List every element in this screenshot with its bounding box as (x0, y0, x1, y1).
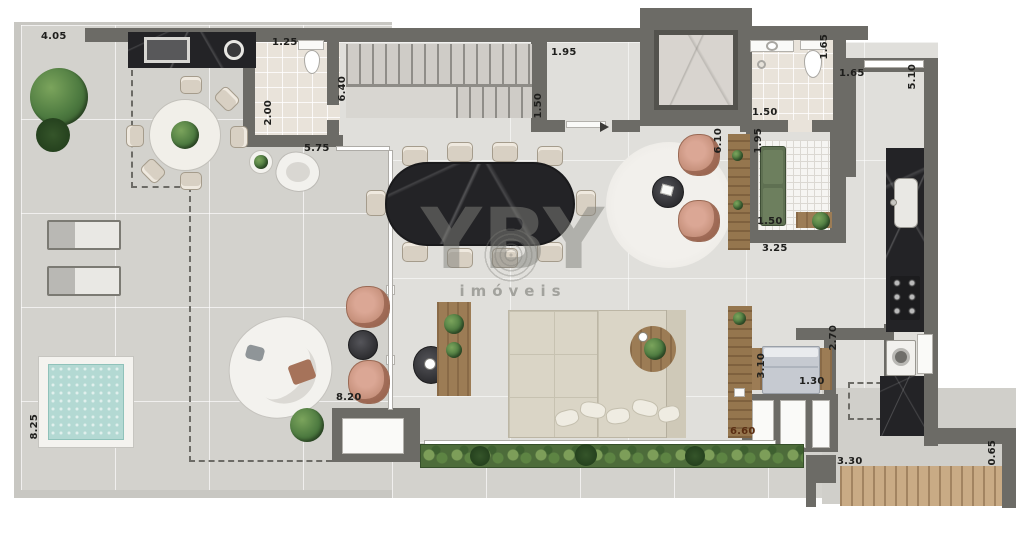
bath-basin (766, 41, 778, 51)
dimension-label: 3.25 (762, 244, 787, 254)
tree (30, 68, 88, 126)
stair-landing (346, 86, 456, 118)
sun-lounger (47, 266, 121, 296)
wall-garden-bottom (746, 230, 846, 243)
garden-sofa-cushion (763, 150, 783, 184)
shower-drain (757, 60, 766, 69)
dimension-label: 1.30 (799, 377, 824, 387)
closet-door-panel (812, 400, 830, 448)
service-counter (880, 376, 924, 436)
grill-icon (144, 37, 190, 63)
terrace-chair (180, 172, 202, 190)
console-plant (446, 342, 462, 358)
dimension-label: 1.50 (757, 217, 782, 227)
garden-plant (812, 212, 830, 230)
sofa-modules (508, 310, 598, 438)
wall-hedge-right-leg (806, 483, 816, 507)
palm-plant (36, 118, 70, 152)
hedge-palm (685, 446, 705, 466)
dark-side-table (348, 330, 378, 360)
service-cabinet (917, 334, 933, 374)
projection-line (189, 460, 332, 462)
faucet-icon (890, 199, 897, 206)
lounge-armchair (678, 200, 720, 242)
dimension-label: 3.30 (837, 457, 862, 467)
hedge-palm (575, 444, 597, 466)
tv-panel-plant (733, 312, 746, 325)
wall-hedge-right (806, 455, 836, 483)
wall-bedroom-top (796, 328, 892, 340)
dimension-label: 1.95 (551, 48, 576, 58)
table-centerpiece (171, 121, 199, 149)
organic-armchair-seat (286, 162, 310, 182)
dimension-label: 1.50 (752, 108, 777, 118)
wall-deck-right (1002, 444, 1016, 508)
tv-panel (728, 306, 752, 438)
coffee-table-bowl (424, 358, 436, 370)
bath-door-gap (788, 120, 812, 132)
dining-chair (492, 142, 518, 162)
terrace-chair (230, 126, 248, 148)
floor-plan: 4.05 1.25 6.40 2.00 5.75 1.95 1.50 1.65 … (0, 0, 1024, 534)
watermark-rings-icon (482, 226, 540, 284)
dimension-label: 1.25 (272, 38, 297, 48)
wall-hall-bottom-a (531, 120, 565, 132)
wall-garden-right (830, 132, 846, 242)
washing-machine-door (892, 348, 910, 366)
dimension-label: 5.75 (304, 144, 329, 154)
terrace-chair (180, 76, 202, 94)
bed-blanket-fold (764, 366, 818, 368)
dining-table (385, 162, 575, 246)
coffee-table-plant (644, 338, 666, 360)
dimension-label: 3.10 (757, 353, 767, 378)
dimension-label: 1.50 (534, 93, 544, 118)
wall-top-right (748, 26, 868, 40)
terrace-chair (126, 125, 144, 147)
tv-panel-decor (734, 388, 745, 397)
dimension-label: 6.40 (338, 76, 348, 101)
gourmet-glass (336, 146, 390, 151)
bbq-sink (224, 40, 244, 60)
dimension-label: 1.95 (754, 128, 764, 153)
wall-right (924, 58, 938, 446)
pool (48, 364, 124, 440)
dimension-label: 8.20 (336, 393, 361, 403)
dining-chair (366, 190, 386, 216)
hedge-palm (470, 446, 490, 466)
wall-deck-top (938, 428, 1016, 444)
sun-lounger (47, 220, 121, 250)
terrace-door-panel (342, 418, 404, 454)
closet-door-panel (780, 400, 806, 448)
staircase-upper-flight (346, 44, 532, 86)
dimension-label: 1.65 (839, 69, 864, 79)
side-table-plant (254, 155, 268, 169)
elevator-cab (654, 30, 738, 110)
shelf-plant (732, 150, 743, 161)
bed-pillows (764, 348, 818, 357)
dimension-label: 6.10 (714, 128, 724, 153)
dining-chair (447, 142, 473, 162)
dimension-label: 2.00 (264, 100, 274, 125)
dimension-label: 8.25 (30, 414, 40, 439)
terrace-plant (290, 408, 324, 442)
dimension-label: 5.10 (908, 64, 918, 89)
dining-chair (576, 190, 596, 216)
coffee-table-dish (638, 332, 648, 342)
dimension-label: 6.60 (730, 427, 755, 437)
cooktop-icon (890, 276, 920, 320)
kitchen-sink (894, 178, 918, 228)
projection-line (189, 186, 191, 462)
stair-rail (346, 84, 532, 87)
dining-chair (447, 248, 473, 268)
dimension-label: 1.65 (820, 34, 830, 59)
wall-hall-bottom-b (612, 120, 640, 132)
dimension-label: 4.05 (41, 32, 66, 42)
staircase-lower-flight (456, 86, 532, 118)
dimension-label: 0.65 (988, 440, 998, 465)
dimension-label: 2.70 (829, 325, 839, 350)
wood-deck (840, 466, 1016, 506)
console-plant (444, 314, 464, 334)
powder-toilet-tank (298, 40, 324, 50)
entry-arrow-icon (600, 122, 609, 132)
living-armchair (346, 286, 390, 328)
shelf-plant (733, 200, 743, 210)
